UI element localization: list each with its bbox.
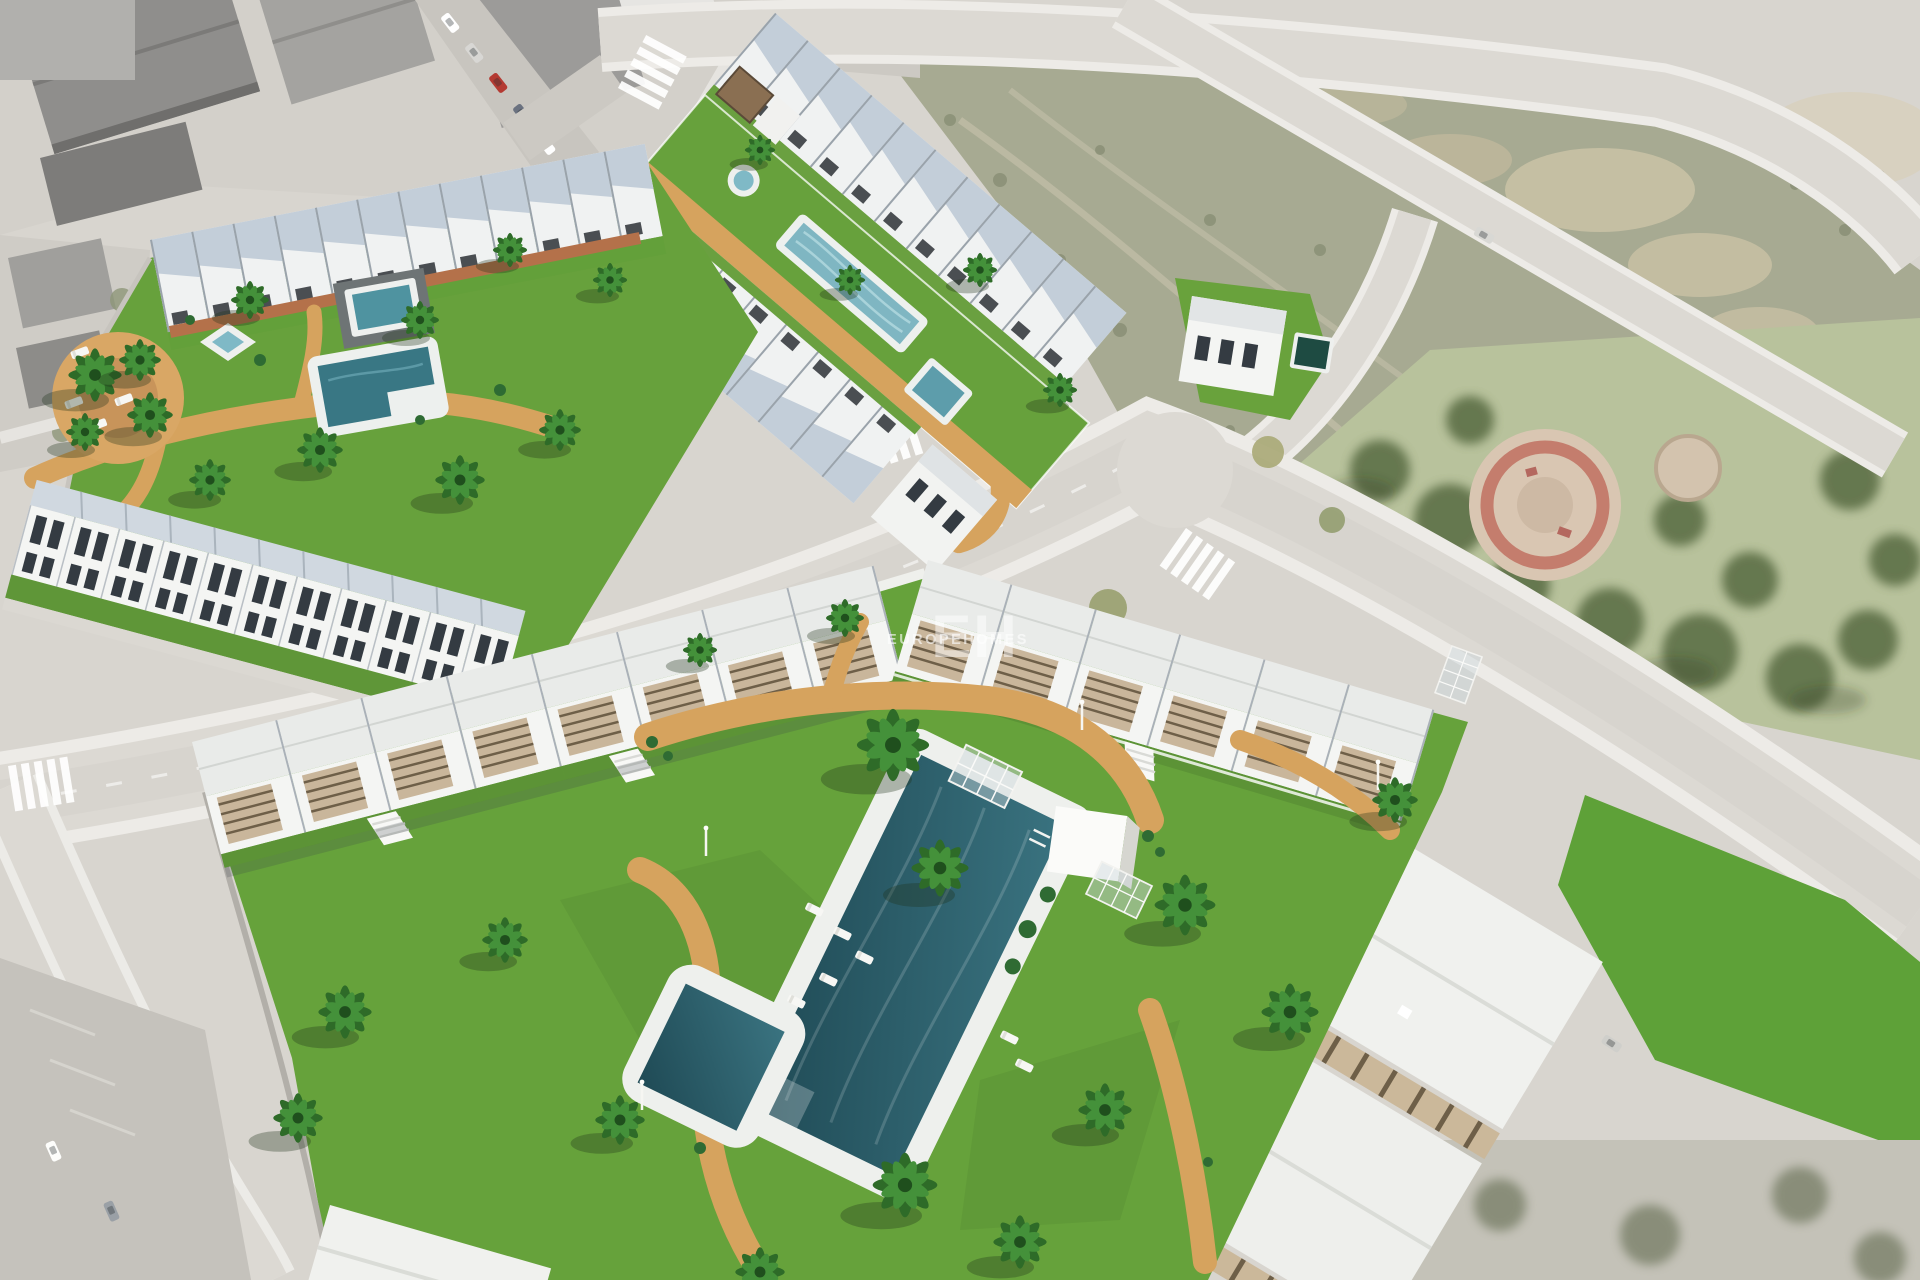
- road-junction: [1117, 412, 1233, 528]
- aerial-render: EH EUROPEHOMES: [0, 0, 1920, 1280]
- private-pool: [1289, 332, 1334, 374]
- aerial-render-stage: EH EUROPEHOMES: [0, 0, 1920, 1280]
- watermark-brand: EUROPEHOMES: [887, 632, 1029, 648]
- villa: [1179, 296, 1287, 396]
